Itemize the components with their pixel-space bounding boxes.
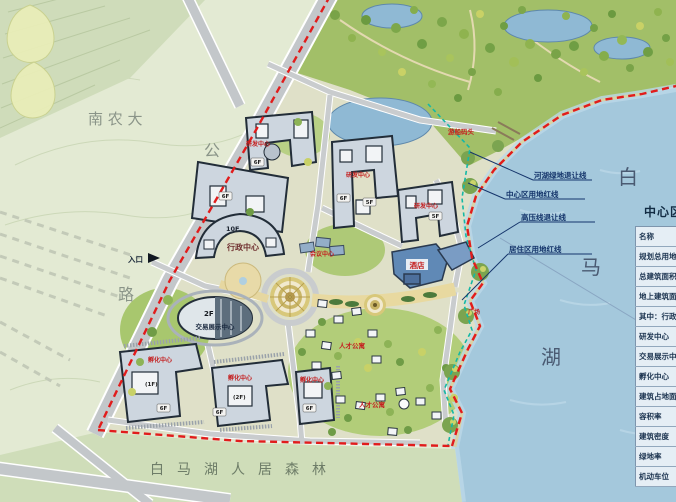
legend-row: 名称 [636,227,676,247]
floor-tag: 5F [432,214,440,220]
legend-cell: 研发中心 [636,327,676,347]
legend-row: 建筑密度 [636,427,676,447]
legend-row: 绿地率 [636,447,676,467]
legend-cell: 总建筑面积 [636,267,676,287]
admin-floor-tag: 10F [226,225,240,233]
legend-cell: 建筑密度 [636,427,676,447]
legend-cell: 容积率 [636,407,676,427]
legend-cell: 交易展示中心 [636,347,676,367]
setback-label-4: 居住区用地红线 [509,244,562,254]
apartment-label-2: 人才公寓 [359,400,386,409]
legend-row: 交易展示中心 [636,347,676,367]
setback-label-3: 高压线退让线 [521,212,566,222]
expo-floor-tag: 2F [204,310,214,318]
forest-band-label: 白马湖人居森林 [150,462,339,478]
floor-tag: (2F) [233,395,246,401]
roundabout [270,277,310,317]
legend-row: 机动车位 [636,467,676,487]
floor-tag: 6F [254,160,262,166]
legend-cell: 规划总用地 [636,247,676,267]
legend-row: 容积率 [636,407,676,427]
floor-tag: 6F [216,410,224,416]
incubator-label-1: 孵化中心 [148,356,172,364]
rnd-label-2: 研发中心 [346,171,370,179]
legend-cell: 名称 [636,227,676,247]
floor-tag: 6F [340,196,348,202]
incubator-label-2: 孵化中心 [228,374,252,382]
admin-center-label: 行政中心 [226,242,259,252]
floor-tag: 6F [306,406,314,412]
axis-circle-plaza [364,294,386,316]
floor-tag: 6F [222,194,230,200]
incubator-label-3: 孵化中心 [300,376,324,384]
legend-row: 孵化中心 [636,367,676,387]
leaf-blob [7,5,54,63]
legend-title: 中心区经济技术指标 [644,203,676,220]
map-canvas: 南 农 大 公 路 白 马 湖 白马湖人居森林 河湖绿地退让线 中心区用地红线 … [0,0,676,502]
university-label: 南 农 大 [88,110,143,128]
legend-row: 规划总用地 [636,247,676,267]
dock-label: 游船码头 [448,127,475,136]
expo-center-building [168,291,262,345]
pavilion [399,399,409,409]
legend-cell: 机动车位 [636,467,676,487]
legend-cell: 地上建筑面积 [636,287,676,307]
floor-tag: 5F [366,200,374,206]
legend-cell: 建筑占地面积 [636,387,676,407]
conference-label: 会议中心 [310,250,334,258]
entrance-label: 入口 [127,255,143,264]
fountain [239,277,247,285]
rnd-label-3: 研发中心 [414,202,438,210]
lake-char-2: 马 [581,255,601,279]
road-char-top: 公 [204,141,220,160]
expo-center-label: 交易展示中心 [196,322,236,331]
hotel-label: 酒店 [410,260,425,270]
lake-char-1: 白 [618,165,638,189]
legend-row: 研发中心 [636,327,676,347]
master-plan-map: 南 农 大 公 路 白 马 湖 白马湖人居森林 河湖绿地退让线 中心区用地红线 … [0,0,676,502]
lake-char-3: 湖 [541,345,561,369]
leaf-blob [11,62,55,118]
setback-label-2: 中心区用地红线 [506,189,559,199]
legend-row: 其中：行政中心 [636,307,676,327]
legend-cell: 孵化中心 [636,367,676,387]
floor-tag: 6F [160,406,168,412]
tree-symbol-overlay [0,0,60,130]
shore-plaza-label: 广场 [468,308,480,316]
rnd-label-1: 研发中心 [246,140,270,148]
legend-row: 建筑占地面积 [636,387,676,407]
road-char-bottom: 路 [118,285,134,304]
legend-row: 地上建筑面积 [636,287,676,307]
setback-label-1: 河湖绿地退让线 [534,170,587,180]
legend-table: 名称 规划总用地 总建筑面积 地上建筑面积 其中：行政中心 研发中心 交易展示中… [635,226,676,487]
legend-cell: 其中：行政中心 [636,307,676,327]
legend-cell: 绿地率 [636,447,676,467]
legend-row: 总建筑面积 [636,267,676,287]
floor-tag: (1F) [145,382,158,388]
apartment-label-1: 人才公寓 [339,341,366,350]
